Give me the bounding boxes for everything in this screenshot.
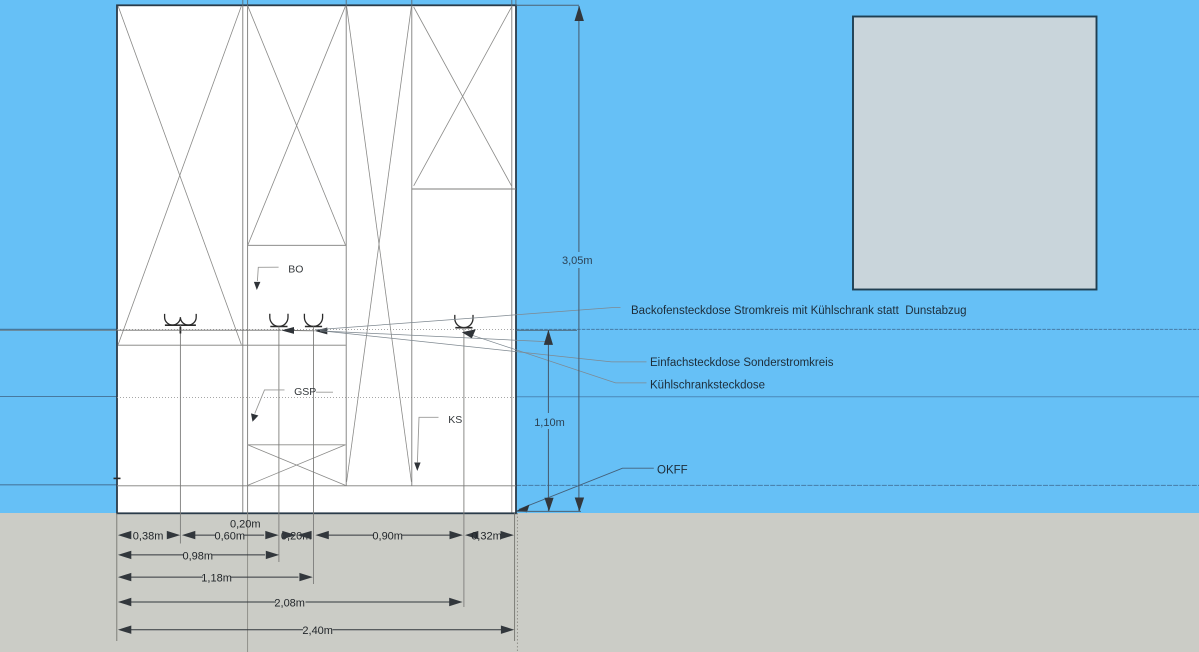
svg-text:Einfachsteckdose Sonderstromkr: Einfachsteckdose Sonderstromkreis: [650, 357, 834, 369]
svg-text:0,98m: 0,98m: [183, 550, 214, 562]
svg-text:1,10m: 1,10m: [534, 417, 565, 429]
svg-text:3,05m: 3,05m: [562, 255, 593, 267]
svg-text:1,18m: 1,18m: [201, 573, 232, 585]
svg-text:0,60m: 0,60m: [215, 531, 246, 543]
svg-text:0,20m: 0,20m: [230, 519, 261, 531]
svg-text:OKFF: OKFF: [657, 465, 688, 477]
svg-text:Backofensteckdose Stromkreis m: Backofensteckdose Stromkreis mit Kühlsch…: [631, 305, 967, 317]
svg-text:0,32m: 0,32m: [471, 531, 502, 543]
svg-text:BO: BO: [288, 264, 303, 276]
svg-text:KS: KS: [448, 414, 462, 426]
svg-text:GSP: GSP: [294, 386, 316, 398]
svg-text:Kühlschranksteckdose: Kühlschranksteckdose: [650, 380, 765, 392]
svg-text:2,40m: 2,40m: [302, 625, 333, 637]
svg-text:2,08m: 2,08m: [274, 598, 305, 610]
svg-text:0,90m: 0,90m: [372, 531, 403, 543]
svg-text:0,38m: 0,38m: [133, 531, 164, 543]
